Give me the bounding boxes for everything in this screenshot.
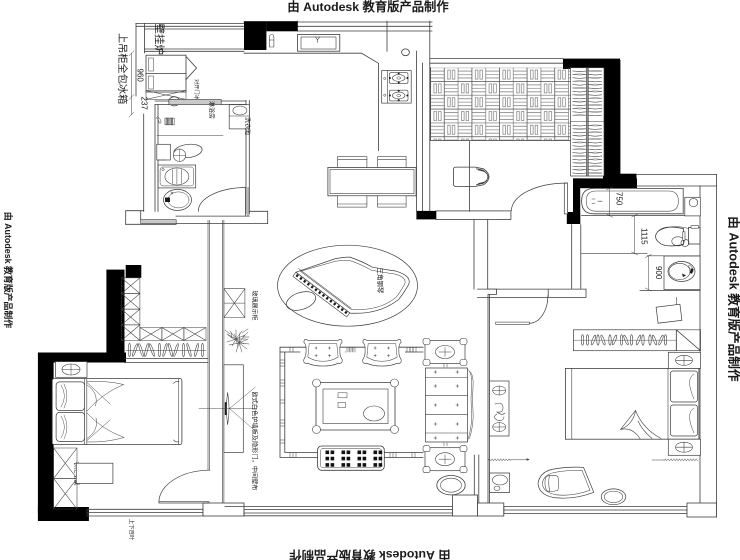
svg-text:由 Autodesk 教育版产品制作: 由 Autodesk 教育版产品制作	[3, 212, 14, 328]
svg-text:960: 960	[136, 69, 145, 83]
svg-text:1115: 1115	[640, 228, 649, 245]
svg-text:上吊柜全包冰箱: 上吊柜全包冰箱	[116, 33, 129, 104]
svg-text:上下百叶: 上下百叶	[128, 519, 136, 541]
svg-text:三角钢琴: 三角钢琴	[376, 268, 385, 295]
svg-text:750: 750	[615, 192, 624, 206]
svg-text:淋浴房: 淋浴房	[208, 101, 216, 119]
svg-text:由 Autodesk 教育版产品制作: 由 Autodesk 教育版产品制作	[287, 0, 449, 14]
svg-text:900: 900	[654, 266, 663, 280]
svg-text:欧式白色护墙板及隐形门，中间壁布: 欧式白色护墙板及隐形门，中间壁布	[251, 392, 259, 491]
svg-text:由 Autodesk 教育版产品制作: 由 Autodesk 教育版产品制作	[727, 216, 740, 382]
svg-text:洗衣池: 洗衣池	[244, 117, 252, 135]
svg-text:壁挂炉: 壁挂炉	[153, 24, 166, 56]
svg-text:237: 237	[140, 97, 149, 111]
svg-text:玻璃展示柜: 玻璃展示柜	[251, 291, 259, 321]
svg-text:由 Autodesk 教育版产品制作: 由 Autodesk 教育版产品制作	[289, 548, 451, 560]
